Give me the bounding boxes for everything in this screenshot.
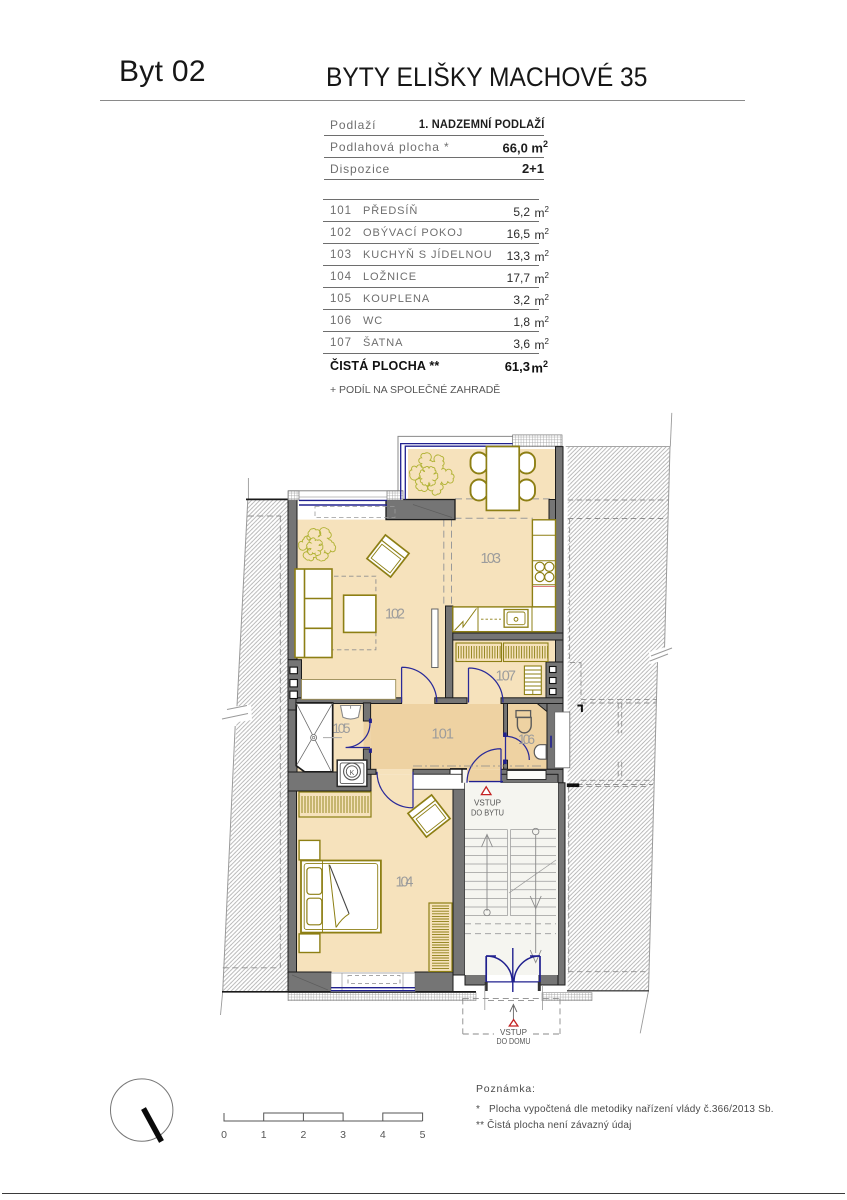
svg-text:DO BYTU: DO BYTU <box>471 809 504 818</box>
svg-text:107: 107 <box>496 669 517 685</box>
svg-text:K: K <box>350 770 355 777</box>
svg-text:106: 106 <box>518 732 535 747</box>
svg-text:101: 101 <box>432 727 455 743</box>
svg-text:102: 102 <box>385 607 405 623</box>
svg-text:VSTUP: VSTUP <box>474 799 501 808</box>
svg-text:104: 104 <box>396 875 414 891</box>
svg-text:0: 0 <box>221 1129 227 1141</box>
svg-text:103: 103 <box>481 551 502 567</box>
svg-text:2: 2 <box>300 1129 306 1141</box>
svg-text:DO DOMU: DO DOMU <box>497 1037 531 1046</box>
svg-text:VSTUP: VSTUP <box>500 1028 527 1037</box>
svg-text:1: 1 <box>261 1129 267 1141</box>
svg-text:5: 5 <box>420 1129 426 1141</box>
svg-text:105: 105 <box>333 721 351 736</box>
svg-text:3: 3 <box>340 1129 346 1141</box>
svg-text:4: 4 <box>380 1129 386 1141</box>
